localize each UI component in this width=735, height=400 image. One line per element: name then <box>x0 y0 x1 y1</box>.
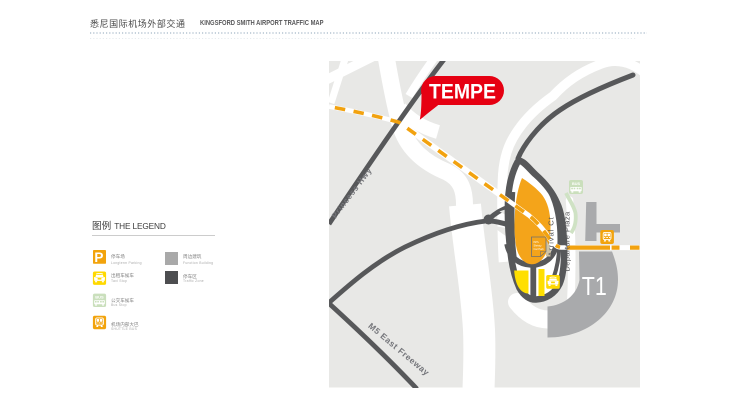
svg-text:INTL: INTL <box>534 240 540 244</box>
svg-text:Arrival Ct: Arrival Ct <box>546 216 555 256</box>
svg-text:BUS: BUS <box>572 182 580 186</box>
svg-text:P: P <box>94 250 103 265</box>
svg-text:TEMPE: TEMPE <box>429 80 496 104</box>
svg-text:Departure Plaza: Departure Plaza <box>562 211 571 272</box>
svg-text:T1: T1 <box>582 273 607 301</box>
svg-text:Shrtsty: Shrtsty <box>534 243 543 247</box>
svg-text:BUS: BUS <box>95 295 104 300</box>
svg-text:Car Park: Car Park <box>534 247 545 251</box>
